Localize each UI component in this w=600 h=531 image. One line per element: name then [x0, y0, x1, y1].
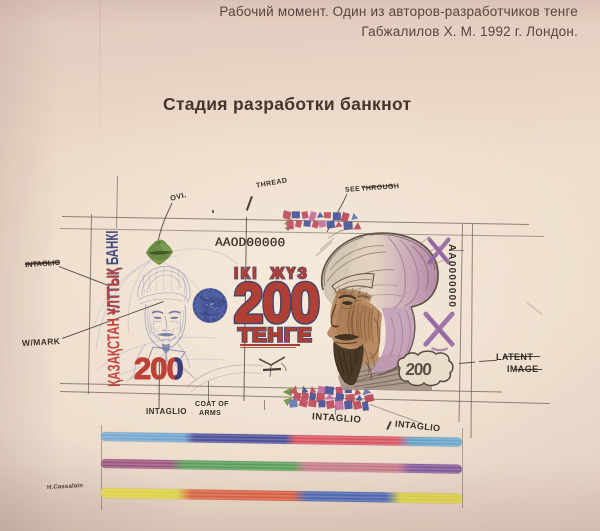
svg-text:200: 200 [405, 360, 432, 379]
